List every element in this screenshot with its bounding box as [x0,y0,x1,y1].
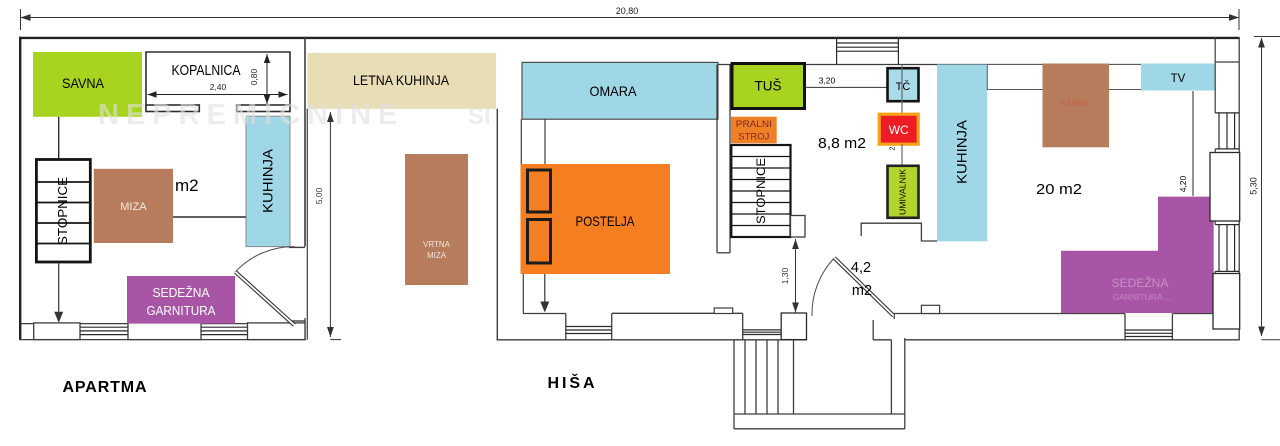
svg-text:MIZA: MIZA [427,251,447,260]
svg-text:UMIVALNIK: UMIVALNIK [898,169,908,215]
svg-text:MIZA: MIZA [120,201,147,213]
svg-text:SEDEŽNA: SEDEŽNA [153,285,211,300]
svg-text:TV: TV [1171,73,1186,85]
svg-text:NEPREMICNINE: NEPREMICNINE [98,99,404,131]
svg-text:20 m2: 20 m2 [1036,181,1082,198]
svg-text:STOPNICE: STOPNICE [754,158,768,224]
svg-text:PRALNI: PRALNI [736,119,772,130]
svg-text:3,20: 3,20 [819,76,836,86]
svg-text:4,20: 4,20 [1178,175,1188,192]
svg-text:TUŠ: TUŠ [755,79,782,94]
svg-text:KUHINJA: KUHINJA [955,120,970,184]
svg-text:LETNA KUHINJA: LETNA KUHINJA [353,73,449,88]
svg-text:VRTNA: VRTNA [423,240,451,249]
svg-text:TČ: TČ [896,80,911,93]
svg-text:0,80: 0,80 [249,68,259,85]
svg-text:2,40: 2,40 [210,82,227,92]
svg-text:WC: WC [889,123,909,137]
svg-text:1,30: 1,30 [780,267,790,284]
svg-text:KOPALNICA: KOPALNICA [172,63,241,79]
svg-text:8,8 m2: 8,8 m2 [818,135,866,152]
svg-text:KUHINJA: KUHINJA [261,149,276,213]
svg-text:5,30: 5,30 [1249,177,1259,195]
svg-text:5,00: 5,00 [314,187,324,204]
svg-text:POSTELJA: POSTELJA [576,213,636,229]
svg-text:20,80: 20,80 [616,6,639,16]
svg-text:OMARA: OMARA [590,83,638,99]
svg-text:KAMIN: KAMIN [1061,98,1088,108]
svg-text:STROJ: STROJ [738,132,769,143]
svg-text:m2: m2 [852,283,872,299]
svg-text:SEDEŽNA: SEDEŽNA [1112,275,1169,290]
svg-text:GARNITURA ...: GARNITURA ... [1112,292,1171,302]
svg-text:APARTMA: APARTMA [63,379,147,396]
svg-text:SAVNA: SAVNA [62,75,105,91]
svg-text:SI: SI [468,103,491,130]
svg-text:GARNITURA: GARNITURA [147,304,217,318]
svg-text:STOPNICE: STOPNICE [56,177,70,245]
svg-text:2: 2 [890,146,897,150]
svg-text:4,2: 4,2 [851,260,871,276]
svg-text:HIŠA: HIŠA [548,373,595,392]
svg-text:m2: m2 [175,176,199,195]
